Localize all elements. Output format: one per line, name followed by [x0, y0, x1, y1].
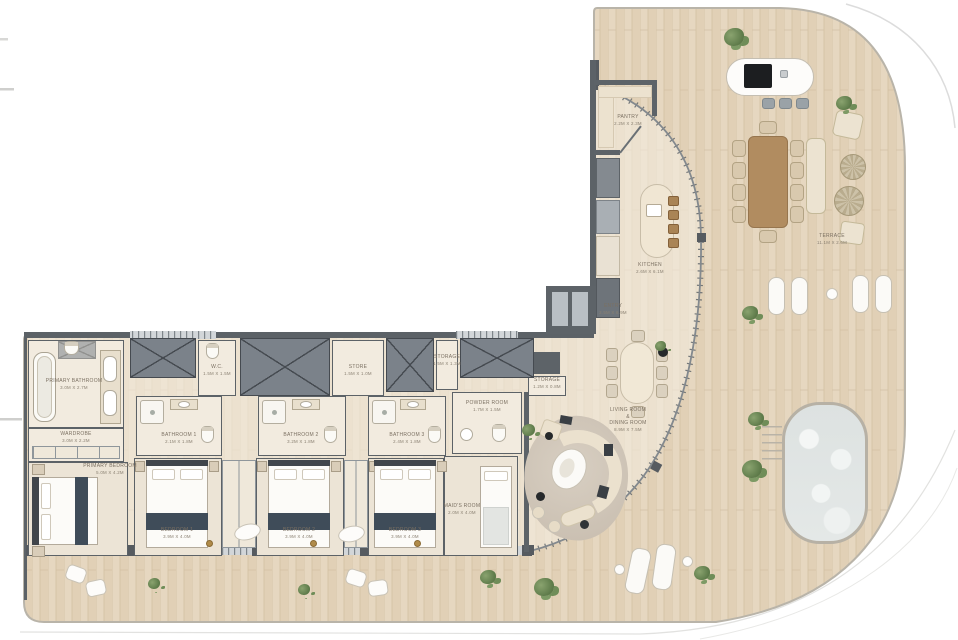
- bar-sink: [780, 70, 788, 78]
- floor-plan: PRIMARY BATHROOM 3.0M X 2.7M W.C. 1.5M X…: [0, 0, 958, 640]
- toilet: [492, 424, 506, 442]
- closet-door: [572, 292, 588, 326]
- plant: [742, 306, 758, 320]
- shower: [140, 400, 164, 424]
- label-bedroom-2: BEDROOM 2 3.9M X 4.0M: [283, 527, 315, 539]
- maid-bed: [480, 466, 512, 548]
- label-bedroom-1: BEDROOM 1 3.9M X 4.0M: [161, 527, 193, 539]
- sink: [407, 401, 419, 408]
- pool-steps: [762, 426, 782, 466]
- side-table: [536, 492, 545, 501]
- side-table: [580, 520, 589, 529]
- duct: [534, 352, 560, 374]
- outdoor-chair: [759, 230, 777, 243]
- knob: [206, 540, 213, 547]
- label-pantry: PANTRY 2.2M X 2.3M: [614, 114, 642, 126]
- stool: [796, 98, 809, 109]
- sun-lounger: [791, 277, 808, 315]
- pouf: [532, 506, 545, 519]
- sun-lounger: [768, 277, 785, 315]
- plant: [298, 584, 310, 595]
- fridge: [596, 200, 620, 234]
- side-table: [826, 288, 838, 300]
- knob: [310, 540, 317, 547]
- plant: [694, 566, 710, 580]
- knob: [414, 540, 421, 547]
- side-table: [545, 432, 553, 440]
- plant: [522, 424, 535, 436]
- side-table: [682, 556, 693, 567]
- toilet: [428, 426, 441, 443]
- stool: [668, 196, 679, 206]
- toilet: [64, 341, 79, 355]
- label-kitchen: KITCHEN 2.6M X 6.1M: [636, 262, 664, 274]
- dining-chair: [606, 384, 618, 398]
- label-bathroom-1: BATHROOM 1 2.1M X 1.8M: [161, 432, 196, 444]
- plant: [480, 570, 496, 584]
- counter-unit: [596, 236, 620, 276]
- outdoor-chair: [759, 121, 777, 134]
- sink: [103, 356, 117, 382]
- plant: [836, 96, 852, 110]
- outdoor-chair: [732, 162, 746, 179]
- shower: [372, 400, 396, 424]
- sink: [300, 401, 312, 408]
- shower: [262, 400, 286, 424]
- pool: [782, 402, 868, 544]
- label-store: STORE 1.5M X 1.0M: [344, 364, 372, 376]
- wardrobe-units: [32, 446, 120, 459]
- primary-bed: [32, 477, 98, 545]
- sink: [460, 428, 473, 441]
- toilet: [201, 426, 214, 443]
- outdoor-armchair: [832, 109, 865, 140]
- toilet: [324, 426, 337, 443]
- island-sink: [646, 204, 662, 217]
- nightstand: [32, 464, 45, 475]
- plant: [148, 578, 160, 589]
- plant: [748, 412, 764, 426]
- outdoor-chair: [732, 206, 746, 223]
- stool: [762, 98, 775, 109]
- label-maid-room: MAID'S ROOM 2.0M X 4.0M: [444, 503, 480, 515]
- nightstand: [331, 461, 341, 472]
- outdoor-chair: [732, 140, 746, 157]
- label-bedroom-3: BEDROOM 3 3.9M X 4.0M: [389, 527, 421, 539]
- sun-lounger: [852, 275, 869, 313]
- tall-unit: [596, 158, 620, 198]
- outdoor-chair: [732, 184, 746, 201]
- label-primary-bedroom: PRIMARY BEDROOM 5.0M X 4.2M: [83, 463, 137, 475]
- label-living-dining: LIVING ROOM & DINING ROOM 8.9M X 7.5M: [609, 407, 646, 432]
- dining-table-outdoor: [748, 136, 788, 228]
- wicker-pouf: [834, 186, 864, 216]
- wall: [594, 150, 620, 155]
- dining-chair: [606, 348, 618, 362]
- label-terrace: TERRACE 11.1M X 2.6M: [817, 233, 847, 245]
- stool: [668, 224, 679, 234]
- grill: [744, 64, 772, 88]
- nightstand: [437, 461, 447, 472]
- outdoor-chair: [790, 140, 804, 157]
- label-storage-2: STORAGE 1.2M X 0.8M: [533, 377, 561, 389]
- elevator-shaft: [386, 338, 434, 392]
- label-wardrobe: WARDROBE 3.0M X 2.2M: [60, 431, 91, 443]
- dining-chair: [606, 366, 618, 380]
- label-bathroom-2: BATHROOM 2 3.2M X 1.8M: [283, 432, 318, 444]
- sink: [103, 390, 117, 416]
- duct-shaft: [460, 338, 534, 378]
- dining-chair: [656, 384, 668, 398]
- elevator-shaft: [240, 338, 330, 396]
- dining-chair: [631, 330, 645, 342]
- outdoor-chair: [790, 206, 804, 223]
- nightstand: [257, 461, 267, 472]
- wall: [594, 80, 656, 85]
- label-entry: ENTRY 2.5M X 6.9M: [599, 303, 627, 315]
- cushion: [604, 444, 613, 456]
- dining-table-indoor: [620, 342, 654, 404]
- pantry-counter: [598, 86, 652, 98]
- wall: [652, 80, 657, 116]
- wicker-pouf: [840, 154, 866, 180]
- outdoor-chair: [790, 162, 804, 179]
- outdoor-sofa: [806, 138, 826, 214]
- toilet: [206, 343, 219, 359]
- pouf: [548, 520, 561, 533]
- label-storage-1: STORAGE 1.5M X 1.3M: [433, 354, 461, 366]
- plant: [655, 341, 666, 351]
- nightstand: [209, 461, 219, 472]
- nightstand: [32, 546, 45, 557]
- sink: [178, 401, 190, 408]
- stool: [668, 210, 679, 220]
- stool: [779, 98, 792, 109]
- closet-door: [552, 292, 568, 326]
- plant: [534, 578, 554, 596]
- label-wc: W.C. 1.5M X 1.5M: [203, 364, 231, 376]
- sun-lounger: [875, 275, 892, 313]
- label-powder-room: POWDER ROOM 1.7M X 1.5M: [466, 400, 508, 412]
- plant: [742, 460, 762, 478]
- side-table: [614, 564, 625, 575]
- dining-chair: [656, 366, 668, 380]
- plant: [724, 28, 744, 46]
- floor-cushion: [367, 579, 389, 598]
- stool: [668, 238, 679, 248]
- outdoor-chair: [790, 184, 804, 201]
- elevator-shaft: [130, 338, 196, 378]
- label-bathroom-3: BATHROOM 3 2.4M X 1.8M: [389, 432, 424, 444]
- label-primary-bathroom: PRIMARY BATHROOM 3.0M X 2.7M: [46, 378, 103, 390]
